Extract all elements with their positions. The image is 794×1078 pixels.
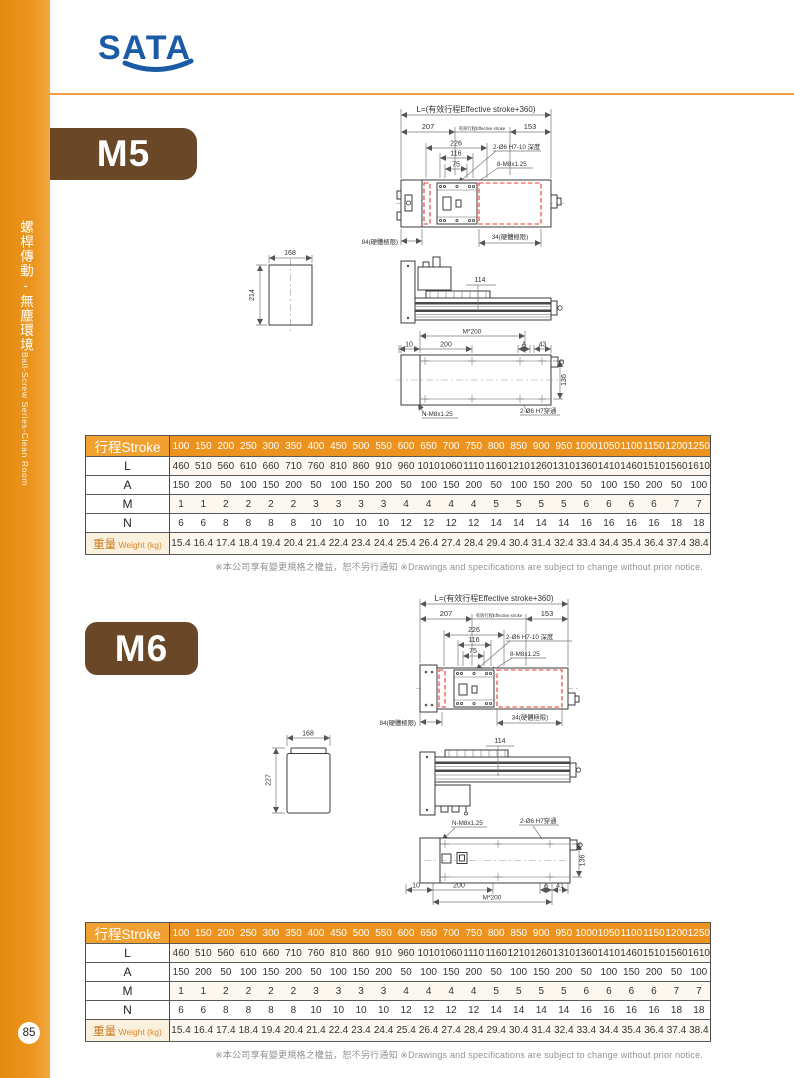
value-cell: 16.4 xyxy=(192,1020,215,1042)
section-height-label: 227 xyxy=(266,774,273,786)
dim-label-75: 75 xyxy=(452,162,460,169)
limit-left-label: 84(硬體極限) xyxy=(380,718,416,727)
value-cell: 860 xyxy=(350,457,373,476)
value-cell: 7 xyxy=(688,982,711,1001)
value-cell: 1160 xyxy=(485,457,508,476)
value-cell: 910 xyxy=(372,457,395,476)
stroke-column-header: 150 xyxy=(192,923,215,944)
dim-label-m200: M*200 xyxy=(483,895,502,902)
value-cell: 16 xyxy=(598,514,621,533)
value-cell: 100 xyxy=(237,476,260,495)
value-cell: 200 xyxy=(643,476,666,495)
stroke-header-cell: 行程Stroke xyxy=(86,923,170,944)
value-cell: 6 xyxy=(598,982,621,1001)
page-number-badge: 85 xyxy=(18,1022,40,1044)
value-cell: 3 xyxy=(350,495,373,514)
section-width-label: 168 xyxy=(284,250,296,257)
value-cell: 2 xyxy=(215,982,238,1001)
series-title-zh: 螺桿傳動-無塵環境 xyxy=(15,220,35,352)
stroke-column-header: 400 xyxy=(305,436,328,457)
value-cell: 150 xyxy=(530,476,553,495)
value-cell: 610 xyxy=(237,944,260,963)
value-cell: 20.4 xyxy=(282,1020,305,1042)
value-cell: 5 xyxy=(507,495,530,514)
value-cell: 200 xyxy=(282,963,305,982)
value-cell: 6 xyxy=(620,495,643,514)
value-cell: 4 xyxy=(462,982,485,1001)
value-cell: 1310 xyxy=(553,457,576,476)
stroke-column-header: 300 xyxy=(260,923,283,944)
value-cell: 610 xyxy=(237,457,260,476)
value-cell: 6 xyxy=(643,495,666,514)
value-cell: 150 xyxy=(350,476,373,495)
stroke-column-header: 1250 xyxy=(688,436,711,457)
value-cell: 200 xyxy=(282,476,305,495)
dim-label-116: 116 xyxy=(468,637,479,644)
value-cell: 7 xyxy=(665,982,688,1001)
value-cell: 150 xyxy=(440,476,463,495)
stroke-column-header: 100 xyxy=(170,436,193,457)
stroke-column-header: 750 xyxy=(462,923,485,944)
value-cell: 15.4 xyxy=(170,1020,193,1042)
value-cell: 5 xyxy=(530,982,553,1001)
m6-stroke-table: 行程Stroke10015020025030035040045050055060… xyxy=(85,922,711,1042)
value-cell: 200 xyxy=(643,963,666,982)
value-cell: 10 xyxy=(350,514,373,533)
value-cell: 12 xyxy=(395,1001,418,1020)
brand-logo: SATA xyxy=(97,28,215,76)
value-cell: 23.4 xyxy=(350,1020,373,1042)
value-cell: 24.4 xyxy=(372,533,395,555)
bolt-note-label: N-M8x1.25 xyxy=(422,411,453,418)
value-cell: 4 xyxy=(395,982,418,1001)
value-cell: 10 xyxy=(305,514,328,533)
value-cell: 50 xyxy=(575,476,598,495)
value-cell: 760 xyxy=(305,944,328,963)
value-cell: 5 xyxy=(553,495,576,514)
value-cell: 710 xyxy=(282,457,305,476)
stroke-column-header: 350 xyxy=(282,436,305,457)
value-cell: 3 xyxy=(350,982,373,1001)
value-cell: 2 xyxy=(282,495,305,514)
value-cell: 20.4 xyxy=(282,533,305,555)
stroke-column-header: 400 xyxy=(305,923,328,944)
dim-label-226: 226 xyxy=(468,627,480,634)
value-cell: 2 xyxy=(237,495,260,514)
value-cell: 32.4 xyxy=(553,533,576,555)
value-cell: 100 xyxy=(237,963,260,982)
value-cell: 6 xyxy=(170,514,193,533)
value-cell: 100 xyxy=(507,963,530,982)
dim-label-75: 75 xyxy=(469,648,477,655)
value-cell: 7 xyxy=(665,495,688,514)
stroke-column-header: 900 xyxy=(530,923,553,944)
value-cell: 1 xyxy=(170,495,193,514)
value-cell: 4 xyxy=(395,495,418,514)
m6-technical-drawing: L=(有效行程Effective stroke+360) 207 有效行程Eff… xyxy=(230,590,720,922)
stroke-column-header: 1150 xyxy=(643,923,666,944)
value-cell: 560 xyxy=(215,944,238,963)
value-cell: 14 xyxy=(530,514,553,533)
value-cell: 32.4 xyxy=(553,1020,576,1042)
value-cell: 6 xyxy=(643,982,666,1001)
m5-side-view xyxy=(401,257,562,323)
value-cell: 19.4 xyxy=(260,533,283,555)
value-cell: 25.4 xyxy=(395,1020,418,1042)
value-cell: 1210 xyxy=(507,944,530,963)
dim-label-207: 207 xyxy=(422,122,435,131)
value-cell: 19.4 xyxy=(260,1020,283,1042)
value-cell: 100 xyxy=(327,476,350,495)
value-cell: 200 xyxy=(462,476,485,495)
value-cell: 12 xyxy=(462,1001,485,1020)
dim-label-116: 116 xyxy=(450,151,461,158)
value-cell: 18.4 xyxy=(237,533,260,555)
value-cell: 8 xyxy=(215,514,238,533)
value-cell: 150 xyxy=(620,963,643,982)
value-cell: 150 xyxy=(350,963,373,982)
disclaimer-note: ※本公司享有變更規格之權益，恕不另行通知 ※Drawings and speci… xyxy=(85,560,711,573)
value-cell: 34.4 xyxy=(598,1020,621,1042)
section-height-label: 214 xyxy=(249,289,256,301)
value-cell: 1610 xyxy=(688,944,711,963)
value-cell: 200 xyxy=(553,963,576,982)
value-cell: 5 xyxy=(507,982,530,1001)
stroke-column-header: 850 xyxy=(507,923,530,944)
stroke-column-header: 1200 xyxy=(665,436,688,457)
stroke-column-header: 300 xyxy=(260,436,283,457)
value-cell: 18.4 xyxy=(237,1020,260,1042)
value-cell: 7 xyxy=(688,495,711,514)
value-cell: 1110 xyxy=(462,457,485,476)
dim-label-a: A xyxy=(522,342,527,349)
stroke-column-header: 950 xyxy=(553,436,576,457)
row-label-cell: M xyxy=(86,982,170,1001)
m6-bottom-view xyxy=(420,838,582,883)
value-cell: 3 xyxy=(372,982,395,1001)
value-cell: 6 xyxy=(620,982,643,1001)
value-cell: 31.4 xyxy=(530,1020,553,1042)
value-cell: 200 xyxy=(372,963,395,982)
value-cell: 8 xyxy=(215,1001,238,1020)
value-cell: 8 xyxy=(282,1001,305,1020)
stroke-column-header: 250 xyxy=(237,923,260,944)
dim-label-114: 114 xyxy=(474,277,485,284)
value-cell: 1510 xyxy=(643,457,666,476)
value-cell: 100 xyxy=(417,963,440,982)
value-cell: 17.4 xyxy=(215,533,238,555)
value-cell: 37.4 xyxy=(665,533,688,555)
row-label-cell: 重量 Weight (kg) xyxy=(86,1020,170,1042)
value-cell: 200 xyxy=(462,963,485,982)
value-cell: 50 xyxy=(395,963,418,982)
stroke-column-header: 650 xyxy=(417,923,440,944)
through-note-label: 2-Ø6 H7穿通 xyxy=(520,816,557,825)
value-cell: 14 xyxy=(485,1001,508,1020)
value-cell: 12 xyxy=(440,1001,463,1020)
value-cell: 3 xyxy=(327,982,350,1001)
row-label-cell: 重量 Weight (kg) xyxy=(86,533,170,555)
stroke-header-cell: 行程Stroke xyxy=(86,436,170,457)
value-cell: 29.4 xyxy=(485,1020,508,1042)
value-cell: 12 xyxy=(417,514,440,533)
disclaimer-note: ※本公司享有變更規格之權益，恕不另行通知 ※Drawings and speci… xyxy=(85,1048,711,1061)
stroke-column-header: 950 xyxy=(553,923,576,944)
value-cell: 1510 xyxy=(643,944,666,963)
value-cell: 100 xyxy=(598,476,621,495)
value-cell: 660 xyxy=(260,944,283,963)
value-cell: 15.4 xyxy=(170,533,193,555)
stroke-column-header: 600 xyxy=(395,923,418,944)
value-cell: 1360 xyxy=(575,944,598,963)
stroke-column-header: 450 xyxy=(327,436,350,457)
value-cell: 2 xyxy=(260,982,283,1001)
value-cell: 21.4 xyxy=(305,533,328,555)
m6-cross-section-view xyxy=(287,748,330,813)
value-cell: 1560 xyxy=(665,944,688,963)
value-cell: 33.4 xyxy=(575,533,598,555)
stroke-column-header: 600 xyxy=(395,436,418,457)
m6-side-view xyxy=(420,750,581,815)
value-cell: 1560 xyxy=(665,457,688,476)
stroke-column-header: 200 xyxy=(215,923,238,944)
limit-right-label: 34(硬體極限) xyxy=(492,232,528,241)
stroke-column-header: 1000 xyxy=(575,923,598,944)
value-cell: 25.4 xyxy=(395,533,418,555)
value-cell: 510 xyxy=(192,944,215,963)
value-cell: 3 xyxy=(305,495,328,514)
value-cell: 50 xyxy=(665,963,688,982)
value-cell: 10 xyxy=(372,514,395,533)
dim-label-136: 136 xyxy=(580,855,587,867)
value-cell: 1360 xyxy=(575,457,598,476)
m5-top-view xyxy=(396,180,564,227)
hole-note-label: 2-Ø6 H7-10 深度 xyxy=(493,142,541,151)
value-cell: 26.4 xyxy=(417,533,440,555)
value-cell: 150 xyxy=(530,963,553,982)
row-label-cell: A xyxy=(86,963,170,982)
value-cell: 1260 xyxy=(530,457,553,476)
dim-label-114: 114 xyxy=(494,738,505,745)
value-cell: 8 xyxy=(237,1001,260,1020)
bolt-note-label: N-M8x1.25 xyxy=(452,820,483,827)
value-cell: 22.4 xyxy=(327,533,350,555)
value-cell: 28.4 xyxy=(462,1020,485,1042)
screw-note-label: 8-M8x1.25 xyxy=(510,651,540,658)
value-cell: 200 xyxy=(553,476,576,495)
value-cell: 460 xyxy=(170,457,193,476)
value-cell: 6 xyxy=(575,495,598,514)
value-cell: 150 xyxy=(260,476,283,495)
limit-left-label: 84(硬體極限) xyxy=(362,237,398,246)
value-cell: 100 xyxy=(688,963,711,982)
value-cell: 30.4 xyxy=(507,1020,530,1042)
value-cell: 10 xyxy=(327,1001,350,1020)
value-cell: 100 xyxy=(598,963,621,982)
value-cell: 8 xyxy=(260,514,283,533)
value-cell: 8 xyxy=(237,514,260,533)
series-side-tab: 螺桿傳動-無塵環境 Ball-Screw Series-Clean Room 8… xyxy=(0,0,50,1078)
value-cell: 660 xyxy=(260,457,283,476)
value-cell: 14 xyxy=(553,514,576,533)
stroke-column-header: 450 xyxy=(327,923,350,944)
value-cell: 1 xyxy=(170,982,193,1001)
stroke-column-header: 100 xyxy=(170,923,193,944)
value-cell: 18 xyxy=(665,514,688,533)
value-cell: 2 xyxy=(215,495,238,514)
value-cell: 3 xyxy=(372,495,395,514)
value-cell: 38.4 xyxy=(688,533,711,555)
value-cell: 4 xyxy=(417,495,440,514)
value-cell: 460 xyxy=(170,944,193,963)
value-cell: 31.4 xyxy=(530,533,553,555)
stroke-column-header: 500 xyxy=(350,436,373,457)
value-cell: 810 xyxy=(327,457,350,476)
value-cell: 6 xyxy=(192,1001,215,1020)
dim-label-207: 207 xyxy=(440,609,453,618)
value-cell: 50 xyxy=(305,963,328,982)
value-cell: 1060 xyxy=(440,944,463,963)
value-cell: 16 xyxy=(575,514,598,533)
value-cell: 36.4 xyxy=(643,1020,666,1042)
value-cell: 50 xyxy=(395,476,418,495)
value-cell: 16.4 xyxy=(192,533,215,555)
value-cell: 1 xyxy=(192,982,215,1001)
value-cell: 1410 xyxy=(598,944,621,963)
value-cell: 26.4 xyxy=(417,1020,440,1042)
dim-label-200: 200 xyxy=(453,883,465,890)
value-cell: 3 xyxy=(305,982,328,1001)
stroke-column-header: 700 xyxy=(440,923,463,944)
stroke-column-header: 750 xyxy=(462,436,485,457)
value-cell: 4 xyxy=(440,982,463,1001)
dim-label-200: 200 xyxy=(440,342,452,349)
m5-technical-drawing: L=(有效行程Effective stroke+360) 207 有效行程Eff… xyxy=(230,95,720,435)
stroke-column-header: 1100 xyxy=(620,923,643,944)
stroke-column-header: 200 xyxy=(215,436,238,457)
value-cell: 960 xyxy=(395,944,418,963)
value-cell: 1110 xyxy=(462,944,485,963)
value-cell: 34.4 xyxy=(598,533,621,555)
row-label-cell: A xyxy=(86,476,170,495)
value-cell: 6 xyxy=(170,1001,193,1020)
value-cell: 810 xyxy=(327,944,350,963)
hole-note-label: 2-Ø6 H7-10 深度 xyxy=(506,632,554,641)
value-cell: 38.4 xyxy=(688,1020,711,1042)
value-cell: 100 xyxy=(417,476,440,495)
stroke-column-header: 550 xyxy=(372,436,395,457)
value-cell: 16 xyxy=(643,514,666,533)
dim-label-10: 10 xyxy=(412,883,420,890)
value-cell: 150 xyxy=(170,963,193,982)
value-cell: 100 xyxy=(688,476,711,495)
value-cell: 100 xyxy=(327,963,350,982)
dim-label-l-total: L=(有效行程Effective stroke+360) xyxy=(416,104,535,114)
value-cell: 17.4 xyxy=(215,1020,238,1042)
value-cell: 50 xyxy=(575,963,598,982)
value-cell: 200 xyxy=(192,476,215,495)
stroke-column-header: 1100 xyxy=(620,436,643,457)
dim-label-153: 153 xyxy=(524,122,537,131)
value-cell: 14 xyxy=(485,514,508,533)
value-cell: 1460 xyxy=(620,944,643,963)
m5-stroke-table: 行程Stroke10015020025030035040045050055060… xyxy=(85,435,711,555)
stroke-column-header: 1000 xyxy=(575,436,598,457)
value-cell: 4 xyxy=(417,982,440,1001)
value-cell: 510 xyxy=(192,457,215,476)
stroke-column-header: 1200 xyxy=(665,923,688,944)
value-cell: 12 xyxy=(462,514,485,533)
row-label-cell: N xyxy=(86,514,170,533)
stroke-column-header: 250 xyxy=(237,436,260,457)
stroke-column-header: 650 xyxy=(417,436,440,457)
value-cell: 50 xyxy=(215,476,238,495)
dim-label-226: 226 xyxy=(450,141,462,148)
dim-label-l-total: L=(有效行程Effective stroke+360) xyxy=(434,593,553,603)
stroke-column-header: 1050 xyxy=(598,436,621,457)
dim-label-end: 41 xyxy=(556,883,564,890)
dim-label-effective: 有效行程Effective stroke xyxy=(476,612,523,619)
value-cell: 10 xyxy=(305,1001,328,1020)
stroke-column-header: 1050 xyxy=(598,923,621,944)
value-cell: 35.4 xyxy=(620,1020,643,1042)
dim-label-10: 10 xyxy=(405,342,413,349)
value-cell: 10 xyxy=(350,1001,373,1020)
value-cell: 16 xyxy=(620,1001,643,1020)
dim-label-effective: 有效行程Effective stroke xyxy=(459,125,506,132)
value-cell: 5 xyxy=(485,495,508,514)
stroke-column-header: 1250 xyxy=(688,923,711,944)
value-cell: 560 xyxy=(215,457,238,476)
value-cell: 14 xyxy=(530,1001,553,1020)
value-cell: 12 xyxy=(395,514,418,533)
dim-label-end: 43 xyxy=(539,342,547,349)
row-label-cell: M xyxy=(86,495,170,514)
value-cell: 1210 xyxy=(507,457,530,476)
limit-right-label: 34(硬體極限) xyxy=(512,713,548,722)
value-cell: 18 xyxy=(688,1001,711,1020)
value-cell: 1 xyxy=(192,495,215,514)
value-cell: 16 xyxy=(643,1001,666,1020)
value-cell: 18 xyxy=(665,1001,688,1020)
m5-bottom-view xyxy=(396,355,564,405)
stroke-column-header: 800 xyxy=(485,923,508,944)
value-cell: 200 xyxy=(372,476,395,495)
value-cell: 27.4 xyxy=(440,1020,463,1042)
row-label-cell: L xyxy=(86,944,170,963)
value-cell: 1160 xyxy=(485,944,508,963)
value-cell: 4 xyxy=(440,495,463,514)
value-cell: 1010 xyxy=(417,944,440,963)
value-cell: 4 xyxy=(462,495,485,514)
value-cell: 960 xyxy=(395,457,418,476)
value-cell: 50 xyxy=(665,476,688,495)
value-cell: 1260 xyxy=(530,944,553,963)
value-cell: 18 xyxy=(688,514,711,533)
stroke-column-header: 700 xyxy=(440,436,463,457)
row-label-cell: L xyxy=(86,457,170,476)
value-cell: 5 xyxy=(530,495,553,514)
value-cell: 14 xyxy=(507,1001,530,1020)
value-cell: 2 xyxy=(237,982,260,1001)
stroke-column-header: 1150 xyxy=(643,436,666,457)
stroke-column-header: 900 xyxy=(530,436,553,457)
value-cell: 24.4 xyxy=(372,1020,395,1042)
value-cell: 35.4 xyxy=(620,533,643,555)
stroke-column-header: 800 xyxy=(485,436,508,457)
model-badge-m6: M6 xyxy=(85,622,198,675)
value-cell: 1310 xyxy=(553,944,576,963)
